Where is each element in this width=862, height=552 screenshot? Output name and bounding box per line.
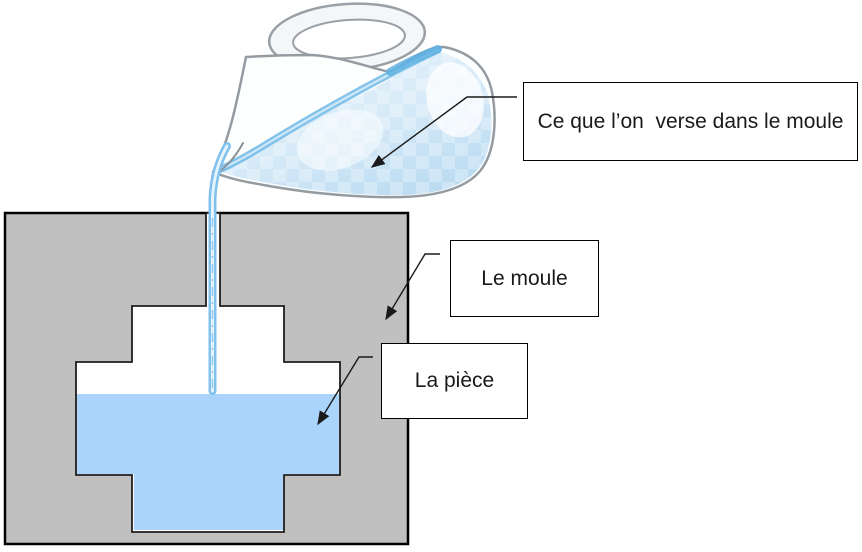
label-box-poured: Ce que l’on verse dans le moule: [523, 82, 858, 161]
label-box-piece: La pièce: [381, 343, 528, 419]
label-mold-text: Le moule: [481, 267, 567, 290]
label-poured-text: Ce que l’on verse dans le moule: [538, 110, 844, 133]
mold-graphic: [5, 213, 408, 544]
diagram-canvas: Ce que l’on verse dans le moule Le moule…: [0, 0, 862, 552]
label-piece-text: La pièce: [415, 369, 494, 392]
pitcher-graphic: [212, 0, 495, 197]
label-box-mold: Le moule: [450, 240, 599, 317]
